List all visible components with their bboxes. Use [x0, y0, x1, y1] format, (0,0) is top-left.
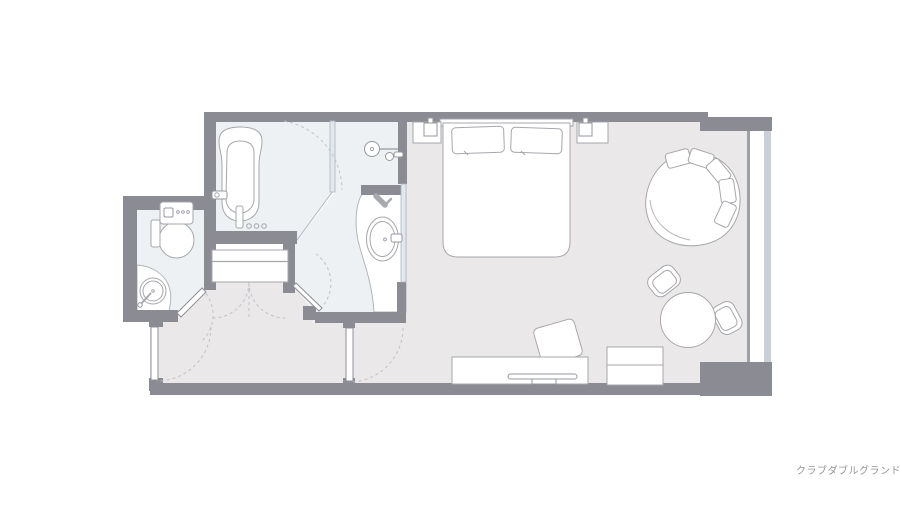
room-type-label: クラブダブルグランド	[796, 462, 900, 477]
round-table	[661, 293, 716, 348]
jamb-entry-top	[149, 315, 163, 327]
wall-shower-bottom	[361, 185, 406, 195]
floorplan-page: クラブダブルグランド	[0, 0, 900, 506]
window-outer-band	[764, 131, 771, 362]
inner-door	[346, 328, 353, 381]
window-glass-line	[747, 131, 750, 362]
nightstand-right	[577, 118, 608, 143]
glass-partition-wash	[401, 184, 406, 282]
table-lamp-icon	[579, 123, 592, 136]
double-bed	[440, 119, 573, 257]
luggage-cabinet	[607, 347, 663, 385]
entry-door	[151, 327, 158, 380]
desk	[452, 357, 588, 384]
tub-drain-icon	[236, 206, 243, 228]
pillow	[511, 127, 563, 154]
tv-icon	[508, 374, 577, 379]
toilet-control-panel	[151, 220, 160, 247]
jamb-inner-top	[343, 316, 355, 328]
jamb-wash-door	[303, 306, 316, 320]
nightstand-left	[413, 118, 441, 143]
hotel-room-floorplan	[0, 0, 900, 506]
pillow	[452, 126, 505, 154]
tv-stand-icon	[532, 379, 556, 384]
wall-wash-bottom	[315, 312, 406, 323]
basin-lever-icon	[138, 303, 142, 307]
table-lamp-icon	[424, 123, 437, 136]
glass-partition-bath	[330, 121, 335, 192]
pillow	[718, 178, 736, 204]
hand-shower-icon	[386, 153, 394, 161]
closet-shelf	[212, 250, 288, 282]
basin-faucet-icon	[391, 234, 402, 242]
wall-bottom-right-block	[700, 362, 772, 396]
wall-top-right-block	[700, 117, 772, 131]
wall-toilet-left	[123, 196, 137, 322]
